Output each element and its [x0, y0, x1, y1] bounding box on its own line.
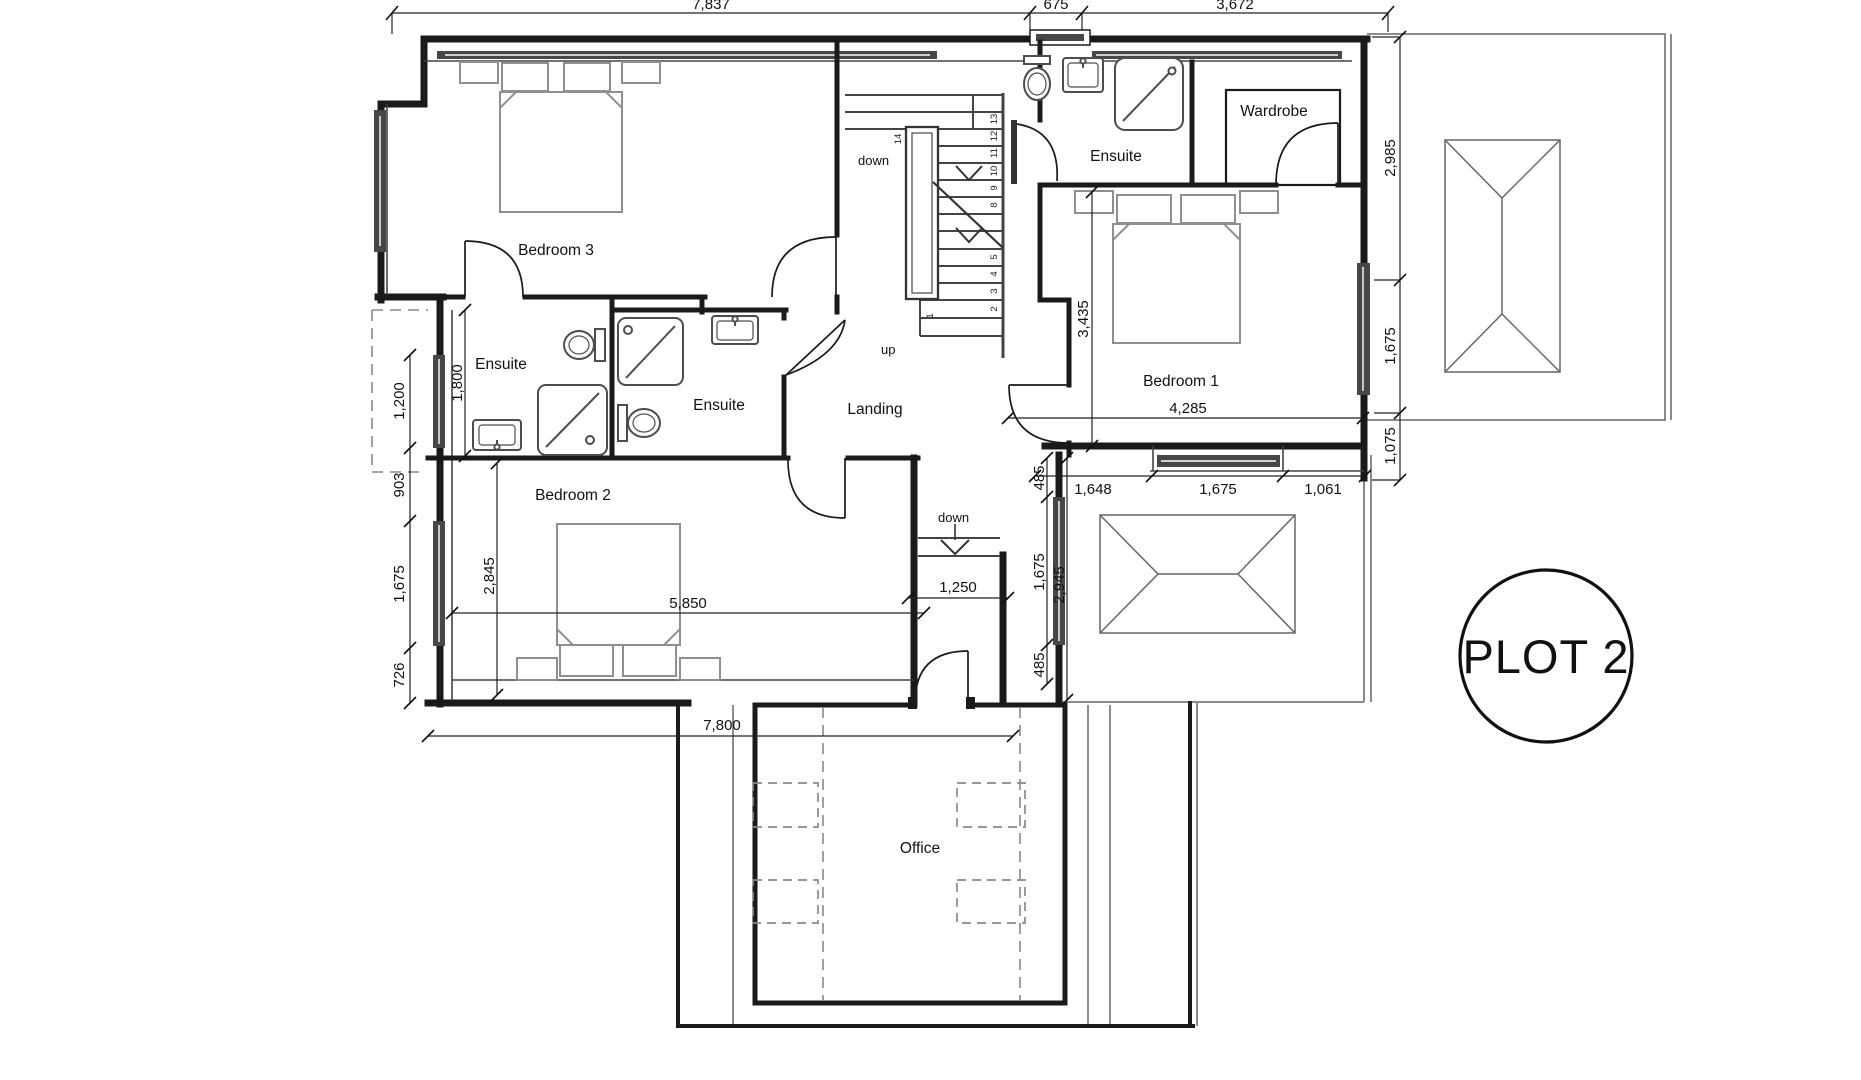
- room-label-wardrobe: Wardrobe: [1240, 103, 1307, 120]
- tread-number: 8: [989, 202, 1000, 207]
- floor-plan-page: 1 2 3 4 5 8 9 10 11 12 13 14 down up dow…: [0, 0, 1861, 1080]
- shower-icon: [538, 385, 607, 455]
- door-bedroom3-ensuite: [465, 241, 523, 297]
- dim-bedroom1-height: 3,435: [1075, 300, 1092, 338]
- toilet-icon: [564, 329, 605, 361]
- dim-inner-right-3: 485: [1031, 652, 1048, 677]
- door-bedroom3-landing: [772, 237, 836, 297]
- room-label-ensuite-bedroom1: Ensuite: [1090, 148, 1142, 165]
- room-label-bedroom1: Bedroom 1: [1143, 373, 1219, 390]
- shower-icon: [1115, 58, 1183, 130]
- room-label-office: Office: [900, 840, 940, 857]
- dim-inner-right-2: 1,675: [1031, 553, 1048, 591]
- room-label-bedroom3: Bedroom 3: [518, 242, 594, 259]
- dim-left-2: 903: [391, 472, 408, 497]
- room-label-landing: Landing: [847, 401, 902, 418]
- tread-number: 1: [925, 313, 936, 318]
- dim-top-1: 7,837: [692, 0, 730, 13]
- dim-bedroom2-width: 5,850: [669, 595, 707, 612]
- tread-number: 12: [989, 131, 1000, 142]
- tread-number: 10: [989, 166, 1000, 177]
- sink-icon: [473, 420, 521, 450]
- corridor-down-stairs: down: [918, 510, 1000, 556]
- dim-bottom-1: 1,648: [1074, 481, 1112, 498]
- door-ensuite-middle: [784, 320, 845, 377]
- door-bedroom1: [1009, 385, 1069, 443]
- dim-inner-right-1: 485: [1031, 465, 1048, 490]
- sink-icon: [712, 316, 758, 344]
- dim-right-2: 1,675: [1382, 327, 1399, 365]
- toilet-icon: [618, 405, 660, 441]
- room-label-bedroom2: Bedroom 2: [535, 487, 611, 504]
- toilet-icon: [1024, 56, 1050, 100]
- room-label-ensuite-bedroom3: Ensuite: [475, 356, 527, 373]
- tread-number: 3: [989, 288, 1000, 293]
- dim-bottom-2: 1,675: [1199, 481, 1237, 498]
- dim-landing-width: 1,250: [939, 579, 977, 596]
- dim-inner-right-total: 2,945: [1051, 566, 1068, 604]
- bed-bedroom3: [460, 62, 660, 212]
- dim-office-width: 7,800: [703, 717, 741, 734]
- corridor-down-label: down: [938, 510, 969, 525]
- plot-badge: PLOT 2: [1460, 570, 1632, 742]
- dim-bedroom2-height: 2,845: [481, 557, 498, 595]
- tread-number: 9: [989, 185, 1000, 190]
- stairs-up-label: up: [881, 342, 895, 357]
- plot-label: PLOT 2: [1462, 630, 1629, 683]
- tread-number: 14: [893, 134, 904, 145]
- tread-number: 2: [989, 306, 1000, 311]
- bed-bedroom1: [1075, 191, 1278, 343]
- sink-icon: [1063, 58, 1103, 92]
- stairs-down-label: down: [858, 153, 889, 168]
- dim-right-3: 1,075: [1382, 427, 1399, 465]
- shower-icon: [618, 318, 683, 385]
- dim-left-1: 1,200: [391, 382, 408, 420]
- door-office: [915, 651, 968, 705]
- door-bedroom2: [788, 458, 845, 518]
- tread-number: 11: [989, 148, 1000, 158]
- dim-top-2: 675: [1043, 0, 1068, 13]
- dim-left-3: 1,675: [391, 565, 408, 603]
- stair-handrail: [906, 127, 938, 299]
- office-desks: [753, 783, 1025, 923]
- staircase: 1 2 3 4 5 8 9 10 11 12 13 14 down up: [845, 93, 1003, 358]
- dim-right-1: 2,985: [1382, 139, 1399, 177]
- floor-plan-drawing: 1 2 3 4 5 8 9 10 11 12 13 14 down up dow…: [0, 0, 1861, 1080]
- dim-bedroom1-width: 4,285: [1169, 400, 1207, 417]
- dim-bottom-3: 1,061: [1304, 481, 1342, 498]
- tread-number: 4: [989, 271, 1000, 276]
- dim-left-4: 726: [391, 662, 408, 687]
- down-arrow-icon: [941, 540, 969, 554]
- tread-number: 5: [989, 254, 1000, 259]
- dim-top-3: 3,672: [1216, 0, 1254, 13]
- door-wardrobe: [1276, 123, 1338, 185]
- dim-ensuite3-height: 1,800: [449, 364, 466, 402]
- door-ensuite1: [1011, 120, 1057, 184]
- tread-number: 13: [989, 114, 1000, 125]
- office-wing: [678, 697, 1193, 1026]
- room-label-ensuite-middle: Ensuite: [693, 397, 745, 414]
